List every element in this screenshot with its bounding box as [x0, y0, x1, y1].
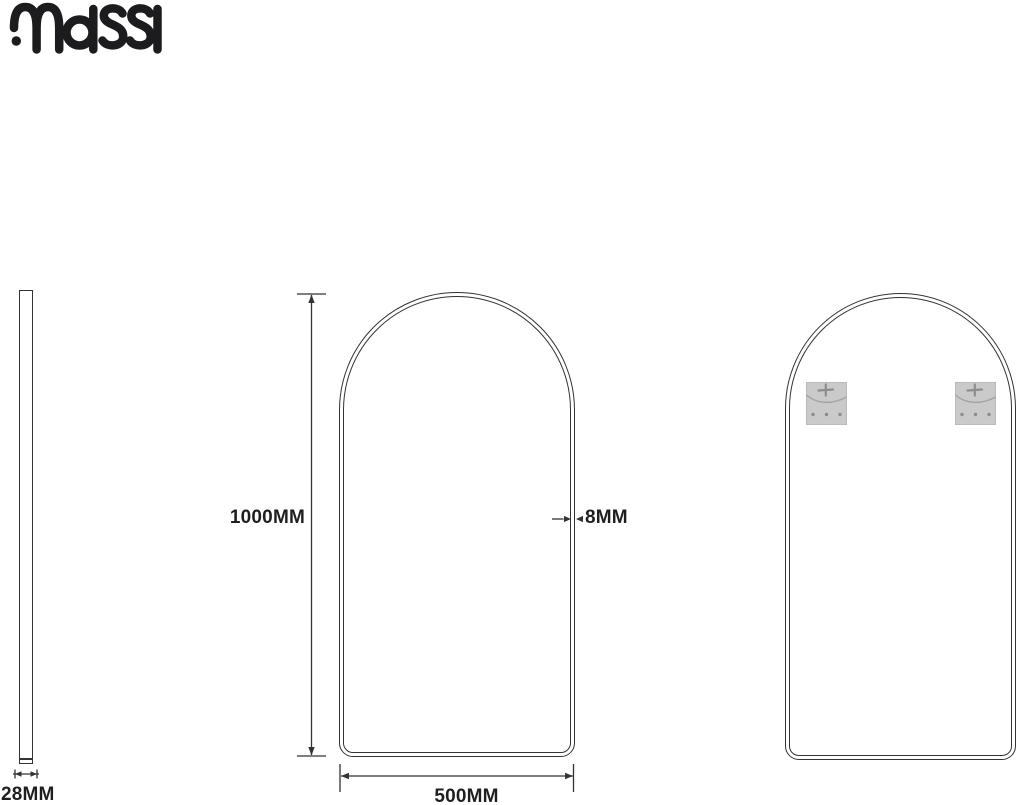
mounting-bracket-icon [955, 382, 996, 425]
back-view-outline [785, 293, 1016, 760]
logo-letter-s [103, 8, 124, 45]
mounting-bracket-icon [806, 382, 847, 425]
edge-thickness-label: 8MM [585, 508, 628, 529]
front-view-inner-line [343, 296, 571, 753]
side-profile-view [19, 290, 33, 764]
logo-letter-s2 [130, 8, 151, 45]
logo-letter-a [67, 20, 93, 46]
logo-m-dot [12, 36, 21, 45]
logo-letter-m [14, 7, 59, 50]
brand-logo [5, 0, 165, 55]
back-view-inner-line [789, 297, 1012, 756]
depth-dimension-line [13, 770, 39, 779]
height-dimension-label: 1000MM [205, 508, 305, 529]
mirror-dimension-drawing: 28MM 1000MM 8MM 500MM [0, 0, 1020, 805]
front-view-outline [339, 292, 575, 757]
side-profile-bottom-cap [20, 758, 32, 760]
depth-dimension-label: 28MM [1, 785, 55, 805]
width-dimension-label: 500MM [406, 787, 527, 805]
